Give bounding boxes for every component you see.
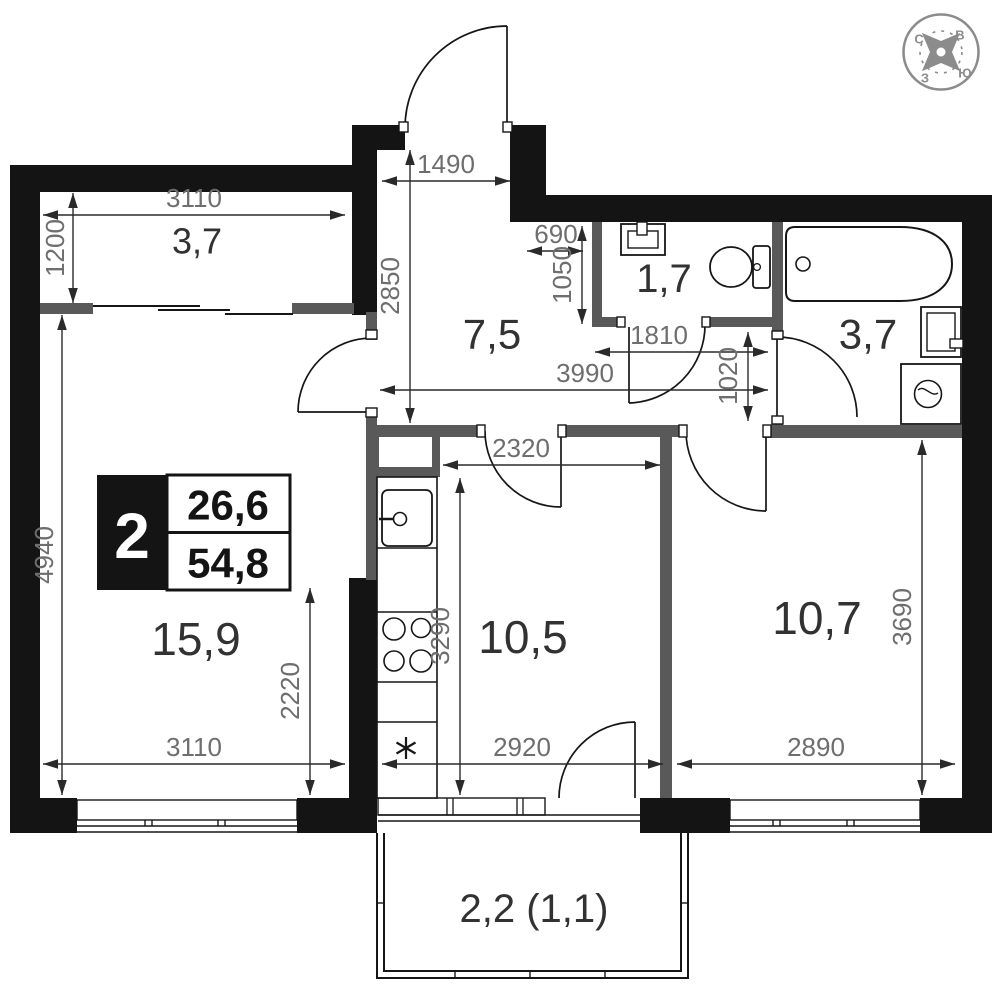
compass-north-label: С xyxy=(914,32,924,47)
dim-text: 3110 xyxy=(166,183,222,213)
dim-text: 1810 xyxy=(630,320,688,350)
partition-wc-bath-divider xyxy=(772,222,783,340)
label-bathroom: 3,7 xyxy=(839,311,897,358)
dim-text: 1050 xyxy=(547,246,577,304)
wall-bottom-right-corner xyxy=(920,798,992,833)
floor-plan: 3110 1200 1490 2850 690 xyxy=(0,0,1000,1000)
dim-text: 2320 xyxy=(492,433,550,463)
wall-left xyxy=(10,165,40,833)
wall-top-right xyxy=(510,195,992,222)
badge-total-area: 54,8 xyxy=(187,540,269,587)
wc-sink xyxy=(621,222,665,255)
dim-text: 3990 xyxy=(556,358,614,388)
dim-text: 2890 xyxy=(787,732,845,762)
dim-text: 3290 xyxy=(425,607,455,665)
label-loggia-top: 3,7 xyxy=(172,221,222,262)
badge-living-area: 26,6 xyxy=(187,482,269,529)
dim-text: 2850 xyxy=(375,257,405,315)
washing-machine xyxy=(901,364,961,424)
label-balcony: 2,2 (1,1) xyxy=(460,887,609,931)
wall-right xyxy=(962,195,992,833)
label-hallway: 7,5 xyxy=(463,311,521,358)
partition-bathroom-bottom xyxy=(763,425,962,438)
dim-text: 4940 xyxy=(29,526,59,584)
dim-text: 3690 xyxy=(887,588,917,646)
dim-text: 1490 xyxy=(417,149,475,179)
label-kitchen: 10,5 xyxy=(478,611,568,663)
compass-hub xyxy=(935,46,947,58)
wall-bottom-left-corner xyxy=(10,798,77,833)
bathtub xyxy=(786,227,952,301)
compass-south-label: Ю xyxy=(958,66,971,81)
wall-entry-left-vertical xyxy=(352,125,377,315)
label-living-room: 15,9 xyxy=(151,613,241,665)
partition-wc-bottom-right xyxy=(702,317,772,327)
kitchen-sink xyxy=(379,490,432,546)
toilet xyxy=(710,246,770,288)
partition-loggia-sill-right xyxy=(292,303,354,314)
partition-kitchen-bedroom xyxy=(660,437,672,798)
wall-bottom-mid-right xyxy=(640,798,730,833)
compass-east-label: В xyxy=(955,28,964,43)
dim-text: 690 xyxy=(534,219,577,249)
dim-text: 2920 xyxy=(493,732,551,762)
wall-bottom-mid-left xyxy=(297,798,377,833)
dim-text: 1020 xyxy=(713,347,743,405)
partition-wc-left xyxy=(592,222,602,327)
partition-hall-kitchen-right xyxy=(558,425,687,437)
dim-text: 2220 xyxy=(275,662,305,720)
apartment-badge: 2 26,6 54,8 xyxy=(97,475,290,590)
badge-rooms-count: 2 xyxy=(114,500,150,572)
label-wc: 1,7 xyxy=(636,257,692,301)
dim-text: 1200 xyxy=(40,219,70,277)
duct-shaft-opening xyxy=(379,437,432,467)
floor-plan-page: 3110 1200 1490 2850 690 xyxy=(0,0,1000,1000)
label-bedroom: 10,7 xyxy=(772,592,862,644)
bathroom-sink xyxy=(921,307,963,357)
compass-west-label: З xyxy=(921,71,929,86)
dim-text: 3110 xyxy=(166,732,222,762)
partition-loggia-sill-left xyxy=(40,303,93,314)
wall-living-kitchen-lower xyxy=(349,578,377,800)
